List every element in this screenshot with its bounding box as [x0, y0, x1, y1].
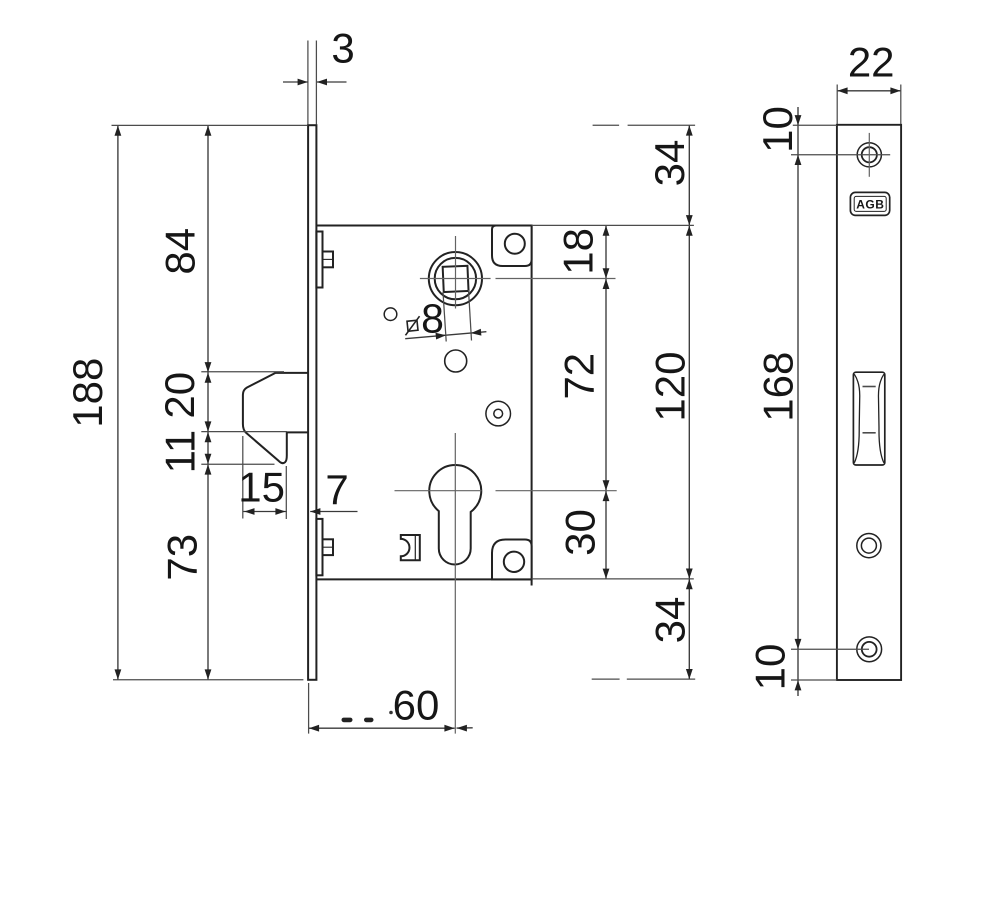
- svg-text:15: 15: [238, 464, 285, 511]
- svg-text:34: 34: [646, 140, 693, 187]
- svg-text:10: 10: [747, 644, 794, 691]
- svg-text:30: 30: [557, 509, 604, 556]
- svg-text:72: 72: [556, 353, 603, 400]
- svg-text:168: 168: [755, 352, 802, 422]
- svg-text:22: 22: [848, 39, 895, 86]
- svg-text:11: 11: [157, 430, 204, 474]
- svg-text:84: 84: [157, 228, 204, 275]
- svg-text:8: 8: [421, 296, 444, 342]
- svg-text:18: 18: [555, 228, 602, 275]
- svg-text:73: 73: [159, 534, 206, 581]
- svg-text:34: 34: [646, 597, 693, 644]
- svg-text:3: 3: [331, 25, 354, 72]
- svg-text:10: 10: [754, 106, 801, 153]
- svg-text:AGB: AGB: [856, 198, 884, 212]
- svg-text:20: 20: [156, 372, 203, 419]
- svg-text:60: 60: [393, 682, 440, 729]
- svg-text:7: 7: [325, 466, 348, 513]
- svg-text:120: 120: [646, 352, 693, 422]
- svg-text:188: 188: [64, 358, 111, 428]
